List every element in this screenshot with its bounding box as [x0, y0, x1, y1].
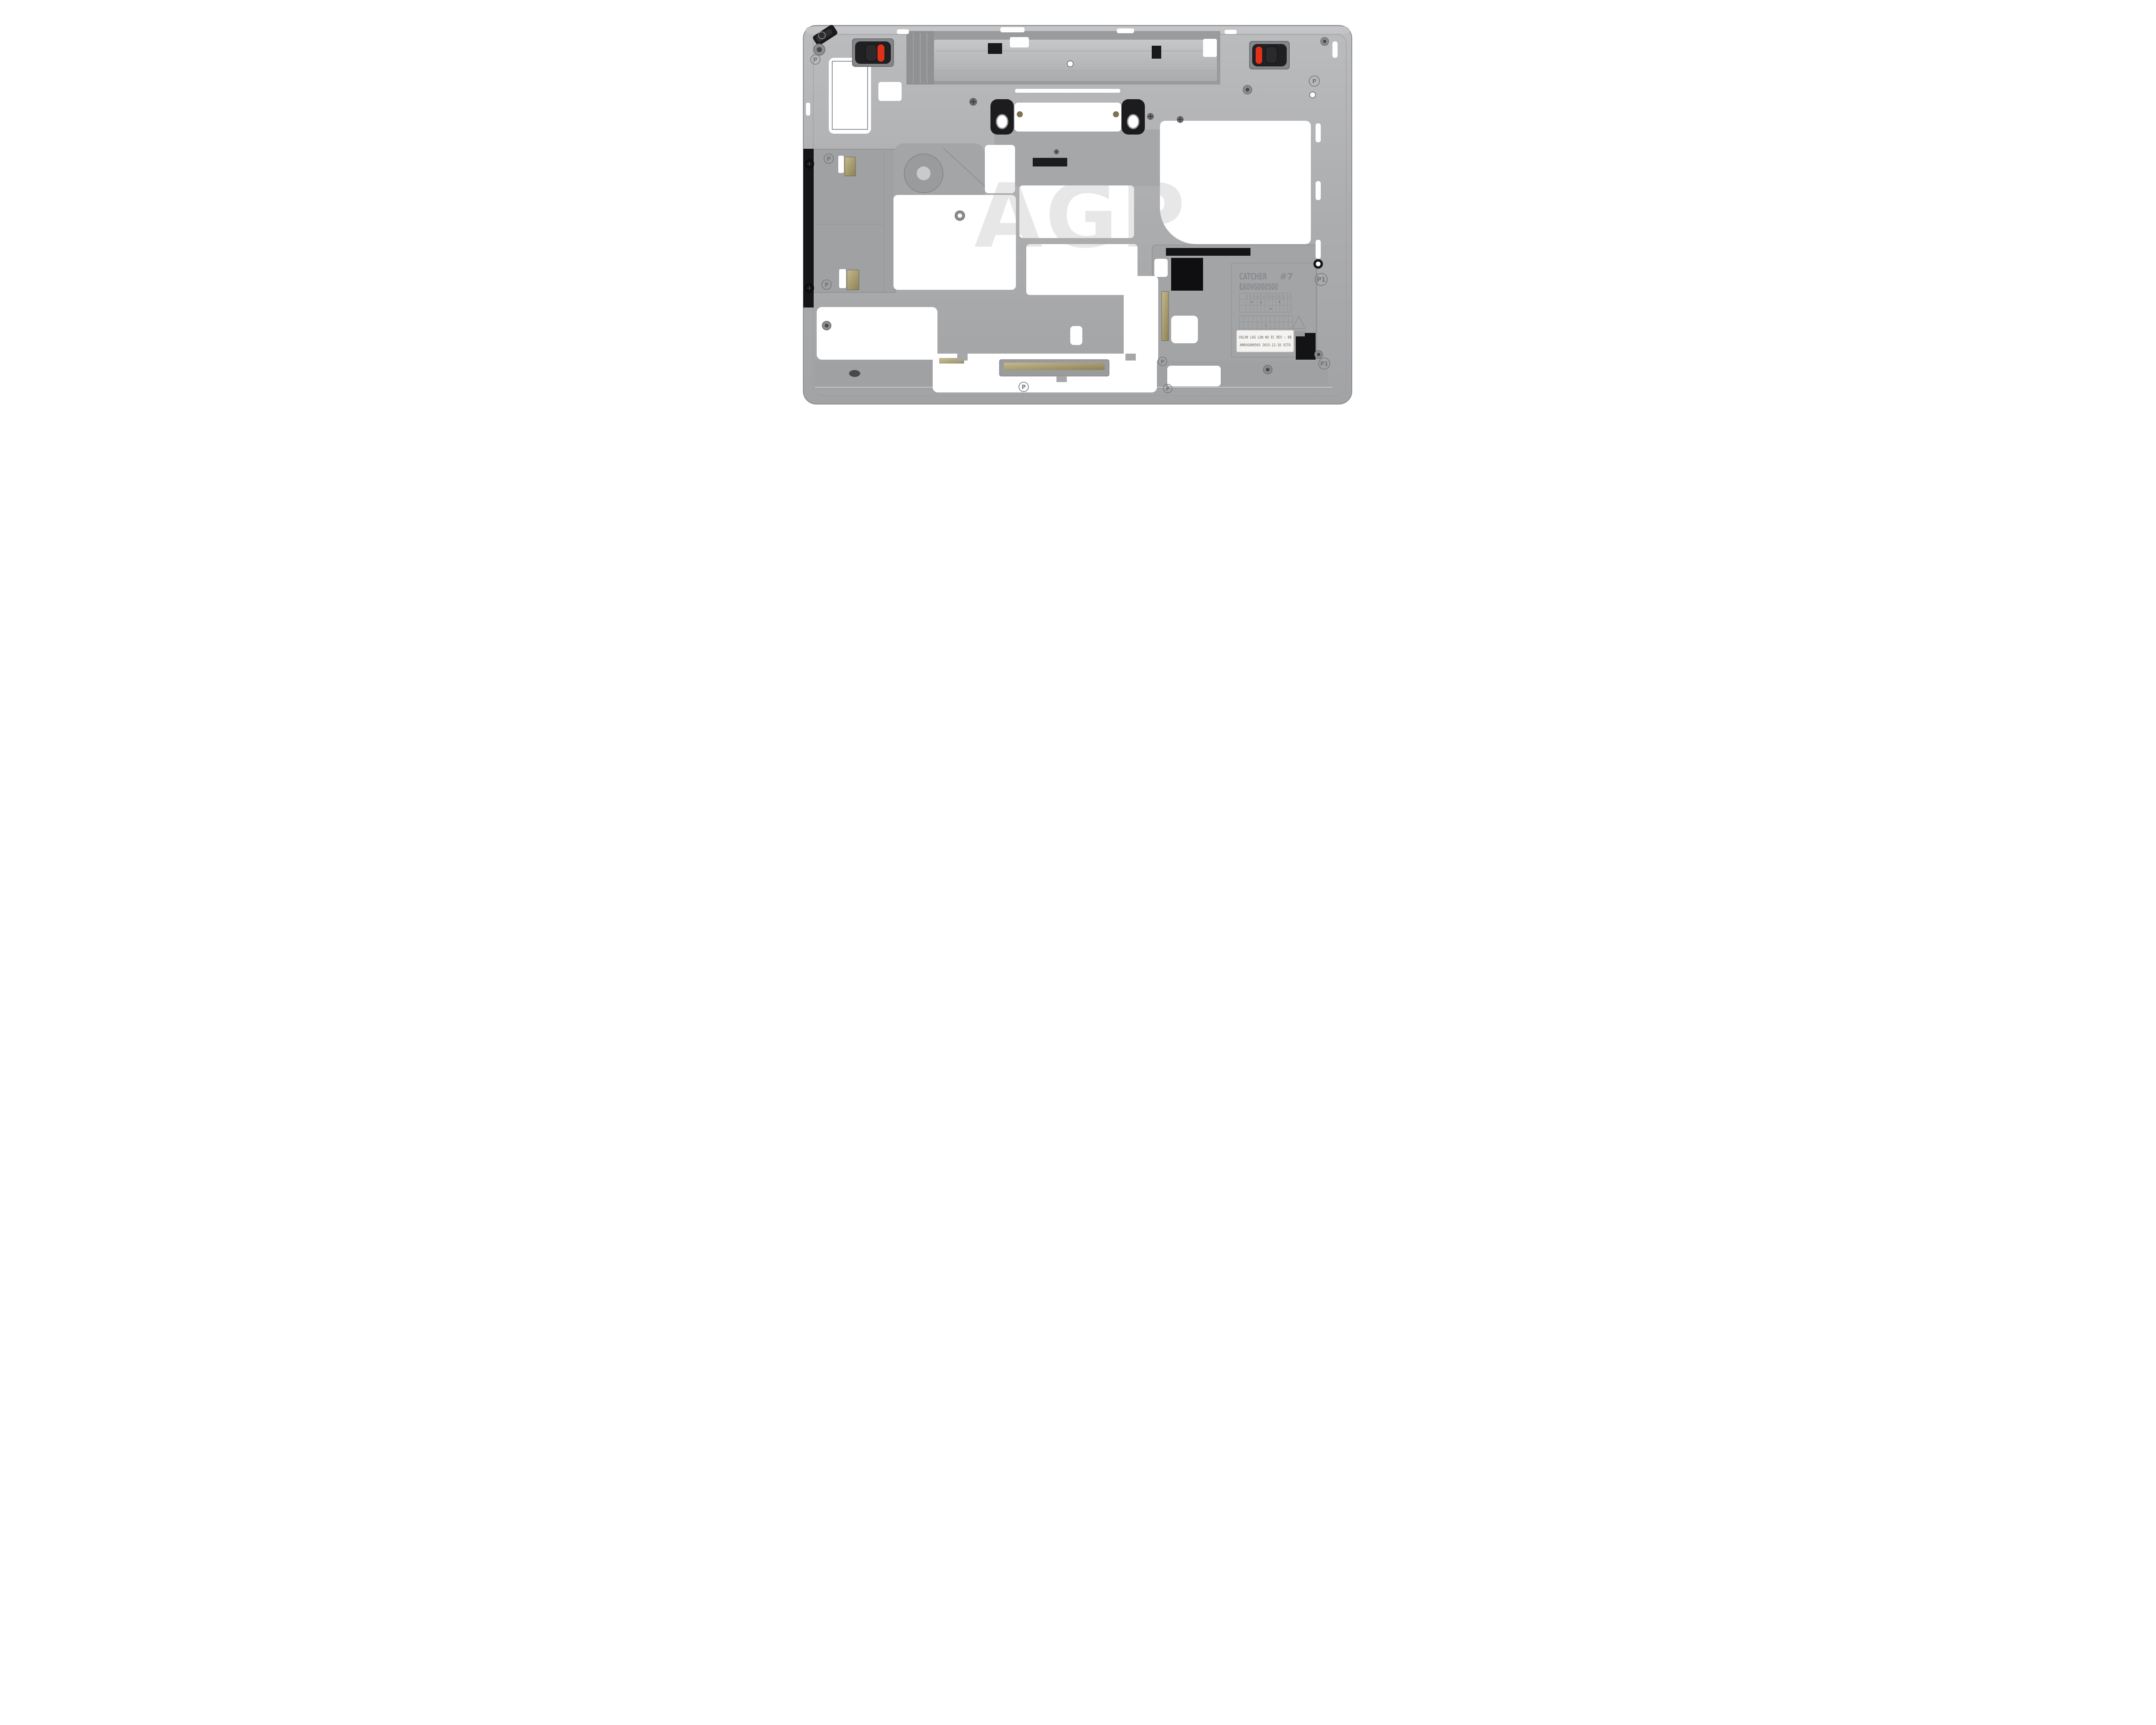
grommet-ring: [1313, 259, 1323, 269]
svg-text:P: P: [1161, 359, 1165, 365]
svg-text:P: P: [1312, 78, 1316, 85]
black-clip-left: [988, 43, 1002, 54]
bracket-hole: [1128, 115, 1139, 129]
felt-pad-square: [1171, 258, 1203, 291]
dock-connector: [1000, 360, 1109, 376]
felt-pad-corner: [1296, 333, 1316, 360]
svg-text:P: P: [824, 282, 829, 289]
screw-phillips: [969, 98, 977, 106]
bracket-pin: [1017, 111, 1023, 117]
battery-bay-panel: [934, 40, 1217, 81]
battery-latch-right: [1250, 41, 1289, 69]
molded-part-name: CATCHER: [1239, 271, 1267, 282]
bronze-block-lower: [847, 270, 859, 290]
molded-cavity-number: #7: [1280, 271, 1293, 282]
latch-red-indicator: [1256, 47, 1262, 64]
svg-text:P1: P1: [1320, 361, 1329, 367]
slot-tab-1: [957, 354, 968, 361]
gold-contact-strip: [1004, 363, 1105, 370]
latch-red-indicator: [877, 44, 884, 62]
bracket-hole: [997, 115, 1008, 129]
svg-text:P: P: [813, 57, 818, 63]
bronze-block-upper: [845, 157, 856, 176]
svg-text:P1: P1: [1317, 276, 1326, 283]
screw-boss: [955, 211, 965, 220]
grommet-screw-lower: [805, 283, 814, 293]
screw-boss: [814, 44, 825, 55]
mold-grid-header: 1 2 3 4 5 6 7 8 9 10 11 12: [1247, 295, 1291, 299]
screw-boss: [1315, 351, 1322, 358]
inspection-sticker: VAL90 LOG LOW WO EC REV : 0B AM0VG000503…: [1237, 330, 1294, 352]
screw-boss: [1243, 85, 1252, 94]
latch-thumb: [865, 44, 877, 61]
battery-latch-left: [852, 39, 893, 66]
screw-boss: [1321, 38, 1329, 45]
dock-platform: [994, 129, 1171, 186]
resin-code-block: [1294, 331, 1305, 336]
screw-phillips: [1054, 149, 1059, 154]
sticker-line2: AM0VG000503 2015-12-28 VITO: [1240, 343, 1291, 348]
felt-strip-top: [1166, 248, 1250, 256]
black-pad-center: [1033, 158, 1067, 166]
svg-text:P: P: [827, 156, 831, 163]
svg-text:P: P: [1022, 384, 1026, 391]
slot-tab-3: [1125, 354, 1136, 361]
mold-grid-mark: 5: [1265, 323, 1267, 328]
screw-boss: [1263, 365, 1272, 374]
gold-contact-vertical: [1162, 292, 1169, 341]
sticker-body: [1237, 330, 1294, 352]
product-photo: AGP: [755, 0, 1401, 431]
oval-hole: [849, 370, 860, 377]
fan-hub: [917, 166, 931, 180]
screw-phillips: [1147, 113, 1154, 120]
black-clip-right: [1152, 46, 1161, 59]
svg-text:P: P: [1166, 386, 1170, 392]
latch-thumb: [1266, 47, 1277, 63]
sticker-line1: VAL90 LOG LOW WO EC REV : 0B: [1239, 336, 1291, 340]
screw-boss: [822, 321, 831, 330]
screw-phillips: [1177, 116, 1184, 123]
grommet-screw-upper: [805, 159, 814, 169]
bracket-pin: [1113, 111, 1119, 117]
slot-tab-2: [1056, 376, 1067, 382]
molded-part-number: EA0VG000500: [1239, 282, 1278, 292]
